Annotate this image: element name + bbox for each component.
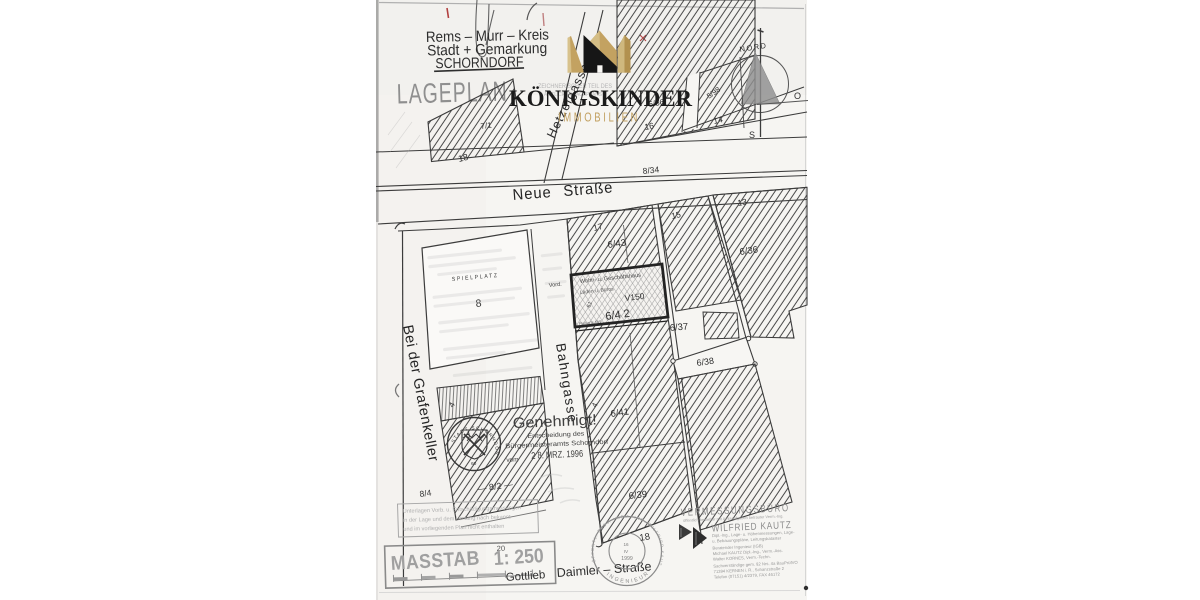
svg-text:16: 16 <box>644 120 655 132</box>
svg-text:60: 60 <box>471 461 477 467</box>
svg-text:O: O <box>794 91 801 101</box>
svg-text:18: 18 <box>639 531 651 544</box>
svg-text:8/4: 8/4 <box>419 487 432 499</box>
svg-text:IV: IV <box>624 549 629 555</box>
svg-text:KÖNIGSKINDER: KÖNIGSKINDER <box>509 86 693 112</box>
svg-text:2 8. MRZ. 1996: 2 8. MRZ. 1996 <box>531 449 583 462</box>
svg-text:6/37: 6/37 <box>669 321 688 334</box>
svg-text:13: 13 <box>737 196 748 208</box>
svg-text:IMMOBILIEN: IMMOBILIEN <box>558 111 640 125</box>
svg-text:7/1: 7/1 <box>480 120 493 131</box>
svg-text:16: 16 <box>623 542 629 547</box>
svg-text:8/34: 8/34 <box>642 164 660 176</box>
svg-text:1999: 1999 <box>621 556 633 562</box>
svg-text:20: 20 <box>497 544 506 553</box>
svg-text:vom: vom <box>506 456 518 464</box>
svg-text:V150: V150 <box>624 291 645 303</box>
svg-text:S: S <box>749 130 755 140</box>
svg-text:6/39: 6/39 <box>628 489 648 502</box>
